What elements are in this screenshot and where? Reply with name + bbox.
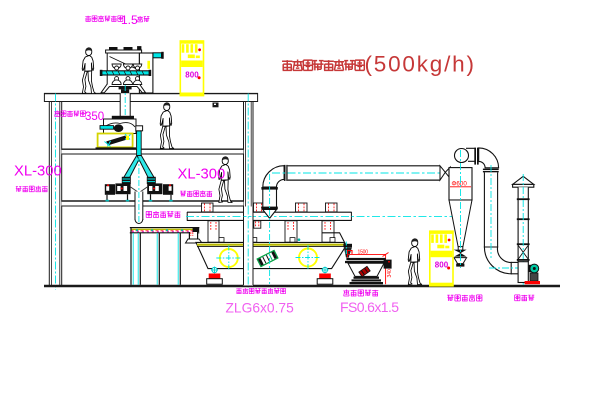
svg-text:FS0.6x1.5: FS0.6x1.5 [340,299,399,315]
svg-text:XL-300: XL-300 [14,164,62,180]
svg-text:350: 350 [85,111,104,123]
svg-text:1.5: 1.5 [121,13,138,27]
svg-text:ZLG6x0.75: ZLG6x0.75 [226,301,295,316]
svg-text:(500kg/h): (500kg/h) [365,52,476,77]
svg-text:340: 340 [387,269,393,278]
svg-text:XL-300: XL-300 [178,167,226,183]
svg-text:1500: 1500 [358,249,369,255]
